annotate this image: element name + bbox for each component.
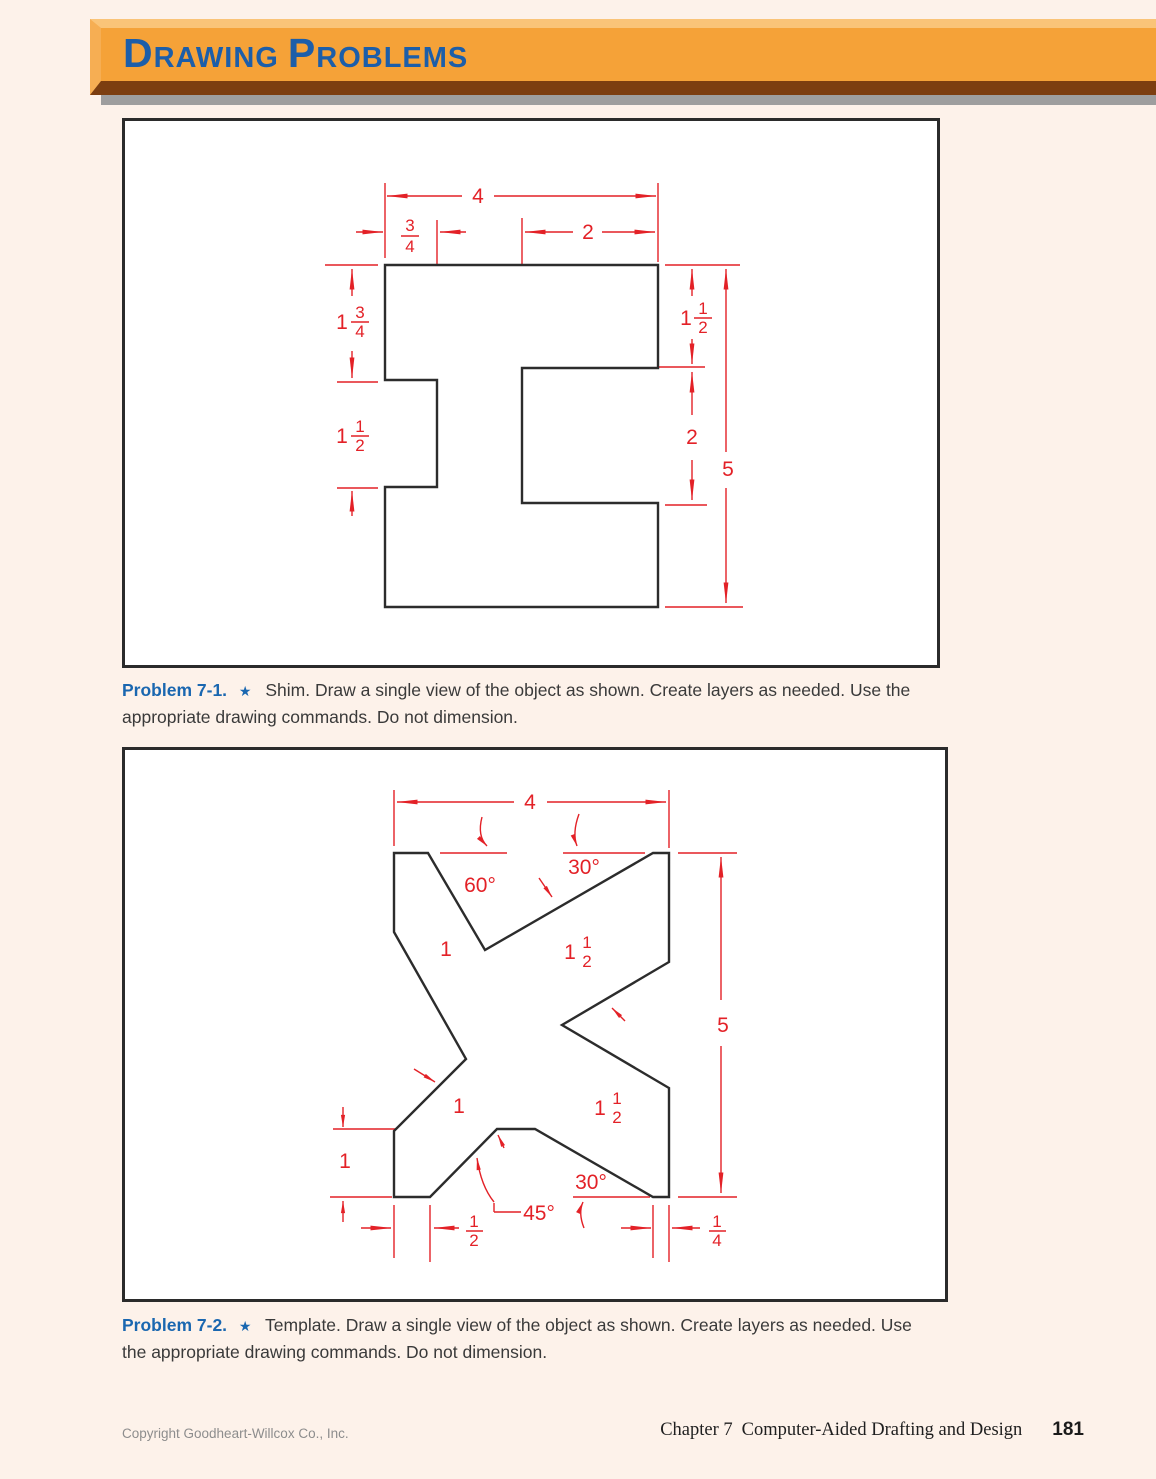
- figure1-caption: Problem 7-1. ★ Shim. Draw a single view …: [122, 677, 934, 730]
- dim-label-bottom-diag-num: 1: [612, 1089, 621, 1108]
- dim-label-quarter-den: 4: [712, 1231, 721, 1250]
- leader-arrow: [581, 1202, 584, 1228]
- leader-arrow: [539, 878, 552, 897]
- page-number: 181: [1052, 1419, 1084, 1441]
- dim-label-left-notch-whole: 1: [336, 425, 348, 448]
- dim-label-overall-width: 4: [524, 791, 536, 814]
- dim-label-top-right: 2: [582, 221, 594, 244]
- dim-label-notch-den: 4: [405, 237, 414, 256]
- drawings-layer: 4 3 4 2 1 3 4 1 1 2 1 1 2 2 5: [0, 0, 1156, 1479]
- dim-label-left-upper-whole: 1: [336, 311, 348, 334]
- dim-label-right-arm-whole: 1: [680, 307, 692, 330]
- dim-label-right-notch: 2: [686, 426, 698, 449]
- dim-label-overall-height: 5: [722, 458, 734, 481]
- dim-label-angle-30-top: 30°: [568, 856, 600, 879]
- shim-outline: [385, 265, 658, 607]
- dim-label-angle-60: 60°: [464, 874, 496, 897]
- dim-label-left-upper-den: 4: [355, 322, 364, 341]
- figure1-drawing: 4 3 4 2 1 3 4 1 1 2 1 1 2 2 5: [325, 183, 743, 607]
- chapter-title: Computer-Aided Drafting and Design: [742, 1420, 1023, 1440]
- dim-label-quarter-num: 1: [712, 1212, 721, 1231]
- leader-arrow: [480, 817, 487, 846]
- dim-label-top-left-seg: 1: [440, 938, 452, 961]
- figure2-drawing: 4 60° 30° 1 1 1 2 5 1 1 1 2 30° 45° 1 1 …: [330, 790, 737, 1262]
- angle-arc-arrow: [477, 1158, 494, 1202]
- dim-label-angle-30-bottom: 30°: [575, 1171, 607, 1194]
- leader-arrow: [575, 814, 579, 846]
- dim-label-left-upper-num: 3: [355, 303, 364, 322]
- star-icon: ★: [239, 1318, 252, 1334]
- chapter-label: Chapter 7: [660, 1420, 732, 1440]
- dim-label-top-diag-den: 2: [582, 952, 591, 971]
- dim-label-angle-45: 45°: [523, 1202, 555, 1225]
- problem-7-1-label: Problem 7-1.: [122, 680, 227, 700]
- dim-label-right-arm-num: 1: [698, 299, 707, 318]
- dim-label-notch-num: 3: [405, 216, 414, 235]
- dim-label-half-num: 1: [469, 1212, 478, 1231]
- leader-arrow: [612, 1008, 625, 1021]
- dim-label-left-notch-num: 1: [355, 417, 364, 436]
- dim-label-mid-left-seg: 1: [453, 1095, 465, 1118]
- dim-label-bottom-diag-whole: 1: [594, 1097, 606, 1120]
- dim-label-overall-width: 4: [472, 185, 484, 208]
- copyright-notice: Copyright Goodheart-Willcox Co., Inc.: [122, 1426, 349, 1441]
- leader-arrow: [414, 1069, 435, 1082]
- dim-label-right-arm-den: 2: [698, 318, 707, 337]
- dim-label-half-den: 2: [469, 1231, 478, 1250]
- problem-7-2-label: Problem 7-2.: [122, 1315, 227, 1335]
- chapter-heading: Chapter 7Computer-Aided Drafting and Des…: [660, 1420, 1022, 1441]
- dim-label-bottom-diag-den: 2: [612, 1108, 621, 1127]
- template-outline: [394, 853, 669, 1197]
- dim-label-left-height: 1: [339, 1150, 351, 1173]
- footer-right: Chapter 7Computer-Aided Drafting and Des…: [660, 1419, 1084, 1441]
- dim-label-left-notch-den: 2: [355, 436, 364, 455]
- dim-label-top-diag-num: 1: [582, 933, 591, 952]
- leader-arrow: [498, 1135, 504, 1148]
- dim-label-top-diag-whole: 1: [564, 941, 576, 964]
- star-icon: ★: [239, 683, 252, 699]
- figure2-caption: Problem 7-2. ★ Template. Draw a single v…: [122, 1312, 934, 1365]
- dim-label-overall-height: 5: [717, 1014, 729, 1037]
